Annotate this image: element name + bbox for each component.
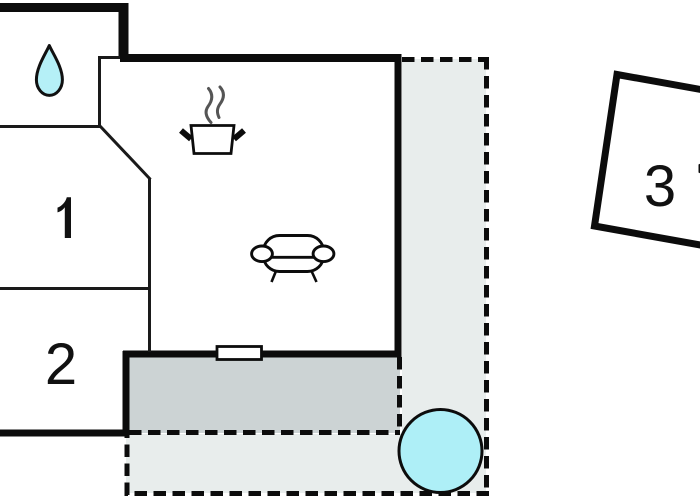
svg-text:2: 2 xyxy=(45,332,77,397)
svg-text:3: 3 xyxy=(644,154,676,219)
